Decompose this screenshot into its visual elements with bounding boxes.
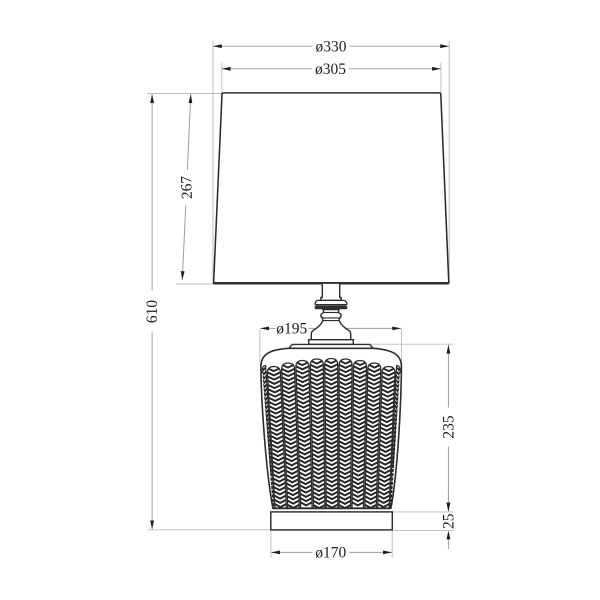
svg-text:610: 610: [144, 300, 161, 324]
svg-text:ø170: ø170: [315, 545, 346, 562]
svg-text:235: 235: [440, 415, 457, 439]
svg-text:ø305: ø305: [315, 61, 346, 78]
svg-text:267: 267: [178, 175, 196, 199]
svg-text:25: 25: [440, 513, 457, 529]
svg-text:ø330: ø330: [316, 38, 347, 55]
svg-text:ø195: ø195: [276, 321, 307, 338]
